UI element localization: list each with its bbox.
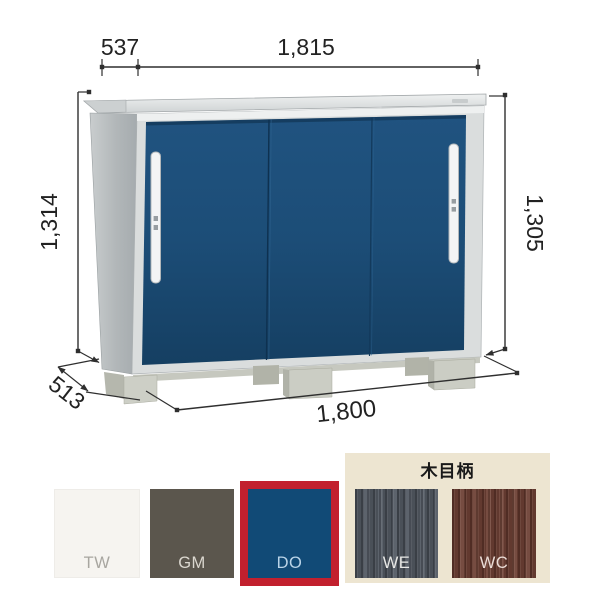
color-swatch-gm[interactable]: GM: [150, 489, 234, 578]
brand-mark: [452, 99, 468, 103]
dim-top-width-label: 1,815: [277, 34, 335, 60]
foot-mid-front-side: [283, 369, 289, 399]
left-door-handle: [151, 152, 161, 283]
cabinet-side-panel: [90, 113, 137, 374]
dim-top: 537 1,815: [100, 34, 480, 76]
foot-corner-front: [124, 375, 157, 404]
dim-top-depth-label: 537: [101, 34, 139, 60]
color-swatch-do-selected[interactable]: DO: [248, 489, 331, 578]
left-handle-lock-icon-2: [154, 225, 158, 230]
sliding-doors: [142, 115, 466, 365]
dim-left-height-label: 1,314: [36, 193, 62, 251]
left-handle-lock-icon: [154, 216, 158, 221]
right-door-handle: [449, 144, 459, 263]
swatch-code-tw: TW: [54, 554, 140, 573]
foot-right-front-side: [428, 360, 434, 390]
dim-left-height: 1,314: [36, 90, 99, 363]
cabinet-lid-left-cap: [84, 100, 126, 113]
swatch-code-do: DO: [248, 554, 331, 573]
dim-base-width-label: 1,800: [315, 395, 378, 428]
swatch-code-we: WE: [355, 554, 438, 573]
right-handle-lock-icon-2: [452, 207, 456, 212]
dim-right-height: 1,305: [486, 93, 548, 355]
foot-right-back: [405, 357, 429, 376]
right-handle-lock-icon: [452, 199, 456, 204]
color-swatch-wc[interactable]: WC: [452, 489, 536, 578]
swatch-code-wc: WC: [452, 554, 536, 573]
color-swatch-we[interactable]: WE: [355, 489, 438, 578]
dim-right-height-label: 1,305: [522, 194, 548, 252]
dim-base-depth-label: 513: [44, 371, 90, 415]
cabinet-dimension-diagram: 537 1,815 1,314 513: [0, 0, 600, 460]
product-spec-page: 537 1,815 1,314 513: [0, 0, 600, 600]
wood-grain-group-label: 木目柄: [345, 457, 550, 482]
color-swatch-tw[interactable]: TW: [54, 489, 140, 578]
swatch-code-gm: GM: [150, 554, 234, 573]
foot-right-front: [434, 359, 475, 390]
foot-mid-back: [253, 365, 279, 385]
storage-cabinet-illustration: [84, 94, 486, 404]
